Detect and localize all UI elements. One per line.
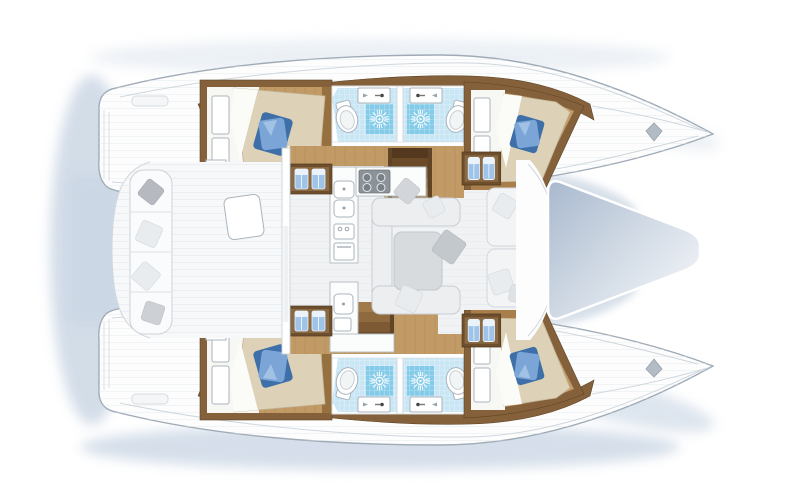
aft-cockpit <box>112 162 288 338</box>
dinette-sofa-fwd <box>372 198 460 226</box>
oven <box>334 224 354 239</box>
drain <box>342 303 345 306</box>
drain <box>343 207 346 210</box>
foredeck <box>516 160 700 340</box>
burner <box>363 174 371 182</box>
burner <box>363 184 371 192</box>
towel-cabinet <box>462 152 501 185</box>
floor-plan-svg <box>0 0 800 500</box>
cockpit-table <box>223 194 264 241</box>
towel-cabinet <box>288 306 332 336</box>
salon-table <box>394 232 442 290</box>
towel-cabinet <box>288 164 332 194</box>
appliance <box>334 318 351 331</box>
stair-tread <box>354 322 390 332</box>
galley-counter-aft <box>330 334 394 352</box>
fridge <box>334 243 354 260</box>
sliding-door <box>284 226 289 322</box>
catamaran-floor-plan <box>0 0 800 500</box>
drain <box>343 188 346 191</box>
burner <box>377 184 385 192</box>
towel-cabinet <box>462 314 501 347</box>
burner <box>377 174 385 182</box>
stair-tread <box>392 148 428 158</box>
